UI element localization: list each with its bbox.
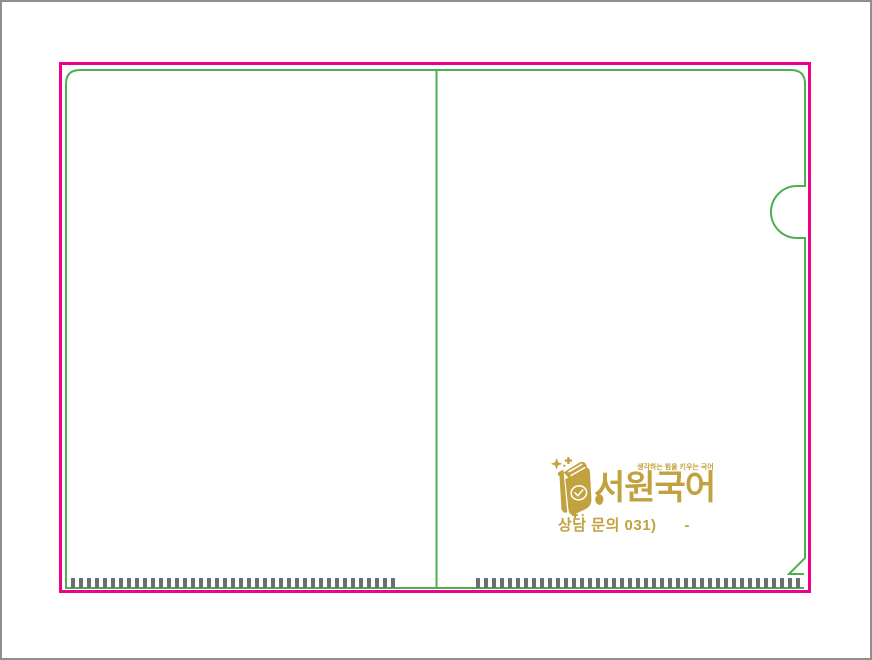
hatch-strip-right [476, 578, 800, 588]
left-panel-outline [66, 70, 437, 588]
contact-phone-line: 상담 문의 031) - [558, 518, 690, 533]
design-canvas: 생각하는 힘을 키우는 국어 서원국어 상담 문의 031) - [0, 0, 872, 660]
brand-name: 서원국어 [594, 471, 774, 505]
folder-outline [2, 2, 870, 658]
hatch-strip-left [71, 578, 399, 588]
